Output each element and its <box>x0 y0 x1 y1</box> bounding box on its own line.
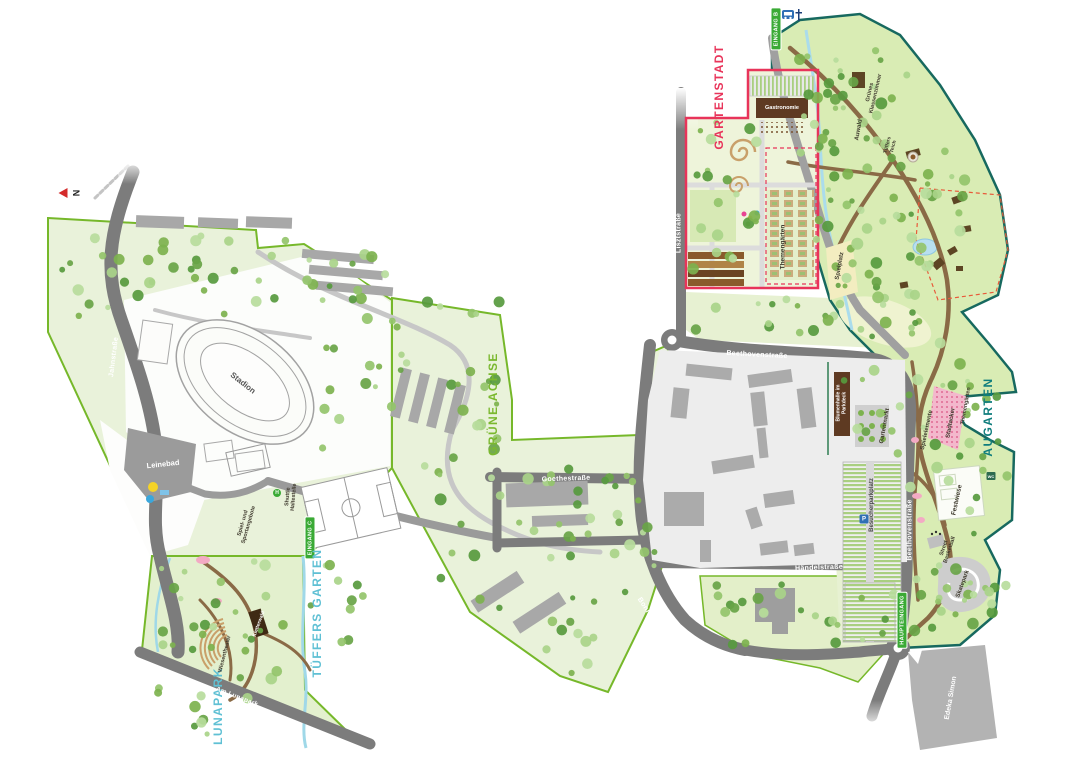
gastronomie-building <box>756 98 808 118</box>
map-canvas <box>0 0 1077 762</box>
cross-icon <box>796 9 803 21</box>
north-arrow-icon <box>59 188 68 198</box>
wc-icon: WC <box>987 472 996 480</box>
bus-stop-icon <box>782 9 804 21</box>
parking-icon: P <box>860 515 869 524</box>
park-map: N Jahnstraße Stadion Leinebad GRÜNE ACHS… <box>0 0 1077 762</box>
festwiese-courts <box>934 466 985 521</box>
edeka-building <box>908 645 997 750</box>
shuttle-stop-icon: H <box>273 489 281 497</box>
